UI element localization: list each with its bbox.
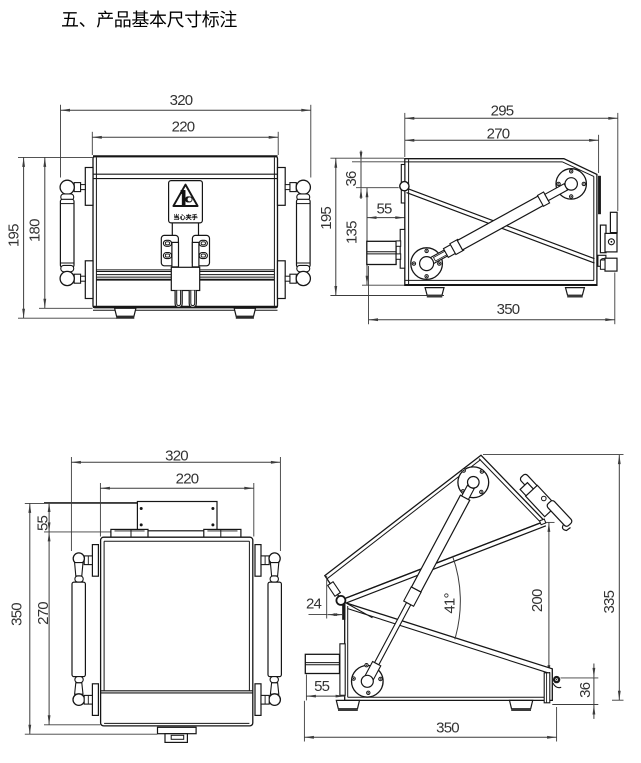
svg-text:270: 270 [35, 602, 52, 625]
svg-text:55: 55 [314, 678, 330, 695]
svg-text:195: 195 [5, 224, 22, 247]
svg-text:180: 180 [27, 219, 44, 242]
svg-text:36: 36 [343, 171, 360, 187]
svg-text:295: 295 [491, 103, 514, 120]
svg-text:350: 350 [436, 720, 459, 737]
svg-text:200: 200 [529, 589, 546, 612]
svg-text:五、产品基本尺寸标注: 五、产品基本尺寸标注 [61, 10, 237, 30]
svg-text:220: 220 [172, 119, 195, 136]
svg-text:335: 335 [601, 590, 618, 613]
svg-text:24: 24 [306, 596, 322, 613]
svg-text:当心夹手: 当心夹手 [173, 214, 197, 222]
svg-text:270: 270 [487, 125, 510, 142]
svg-text:135: 135 [344, 221, 361, 244]
svg-text:36: 36 [577, 682, 594, 698]
svg-text:320: 320 [170, 92, 193, 109]
svg-text:350: 350 [9, 603, 26, 626]
svg-text:55: 55 [376, 200, 392, 217]
svg-text:220: 220 [176, 470, 199, 487]
svg-text:350: 350 [497, 301, 520, 318]
svg-text:195: 195 [318, 207, 335, 230]
svg-text:41°: 41° [441, 593, 458, 614]
